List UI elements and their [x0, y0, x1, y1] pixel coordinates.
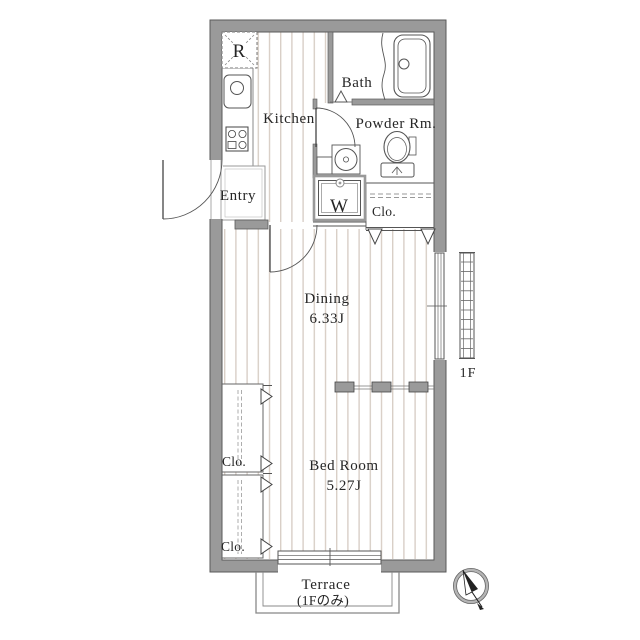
toilet-icon: [381, 132, 416, 178]
powder-room-label: Powder Rm.: [356, 116, 437, 132]
refrigerator-label: R: [233, 41, 246, 62]
floor-plan-drawing: Kitchen Bath Powder Rm. Entry Dining 6.3…: [0, 0, 640, 640]
stove-icon: [226, 127, 248, 151]
bath-label: Bath: [342, 75, 373, 91]
closet-upper-label: Clo.: [222, 454, 246, 469]
floor-indicator: 1F: [460, 366, 477, 381]
terrace-note: (1Fのみ): [297, 593, 349, 608]
hall-closet-label: Clo.: [372, 204, 396, 219]
entry-label: Entry: [220, 188, 256, 204]
dining-label: Dining: [304, 291, 349, 307]
kitchen-label: Kitchen: [263, 111, 315, 127]
bedroom-size: 5.27J: [326, 478, 361, 494]
exterior-stair-symbol: [459, 253, 475, 359]
terrace-window: [278, 548, 381, 573]
terrace-label: Terrace: [302, 577, 351, 593]
vanity-counter: [317, 157, 333, 174]
dining-size: 6.33J: [309, 311, 344, 327]
bedroom-label: Bed Room: [309, 458, 378, 474]
washing-machine-label: W: [330, 196, 348, 217]
closet-lower-label: Clo.: [221, 539, 245, 554]
sliding-partition: [335, 382, 434, 392]
floor-plan: Kitchen Bath Powder Rm. Entry Dining 6.3…: [0, 0, 640, 640]
